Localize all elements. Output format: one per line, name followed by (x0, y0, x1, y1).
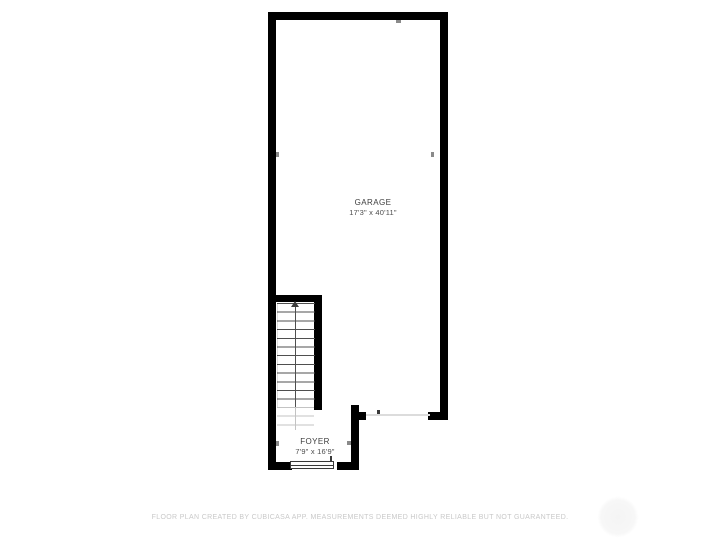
stair-right-wall (314, 295, 322, 410)
foyer-name: FOYER (265, 437, 365, 447)
garage-dimensions: 17'3" x 40'11" (318, 208, 428, 218)
right-exterior-wall (440, 12, 448, 420)
garage-top-wall (268, 12, 448, 20)
garage-door-left-jamb-wall (359, 412, 366, 420)
foyer-bottom-right-wall (337, 462, 359, 470)
room-label-foyer: FOYER 7'9" x 16'9" (265, 437, 365, 457)
garage-door-opening (366, 414, 430, 416)
stairs-up-arrow-icon (291, 301, 299, 307)
floor-plan-canvas: GARAGE 17'3" x 40'11" FOYER 7'9" x 16'9"… (0, 0, 720, 540)
entry-door-inner-line (291, 465, 333, 466)
entry-door-symbol (290, 461, 334, 469)
stair-center-line-faded (295, 407, 296, 430)
left-exterior-wall (268, 12, 276, 470)
garage-name: GARAGE (318, 198, 428, 208)
stair-center-line (295, 303, 296, 407)
room-label-garage: GARAGE 17'3" x 40'11" (318, 198, 428, 218)
top-wall-tick (396, 20, 401, 23)
foyer-bottom-left-wall (268, 462, 292, 470)
foyer-dimensions: 7'9" x 16'9" (265, 447, 365, 457)
watermark-logo (596, 496, 640, 538)
left-wall-tick (276, 152, 279, 157)
stair-treads (277, 303, 315, 407)
right-wall-tick (431, 152, 434, 157)
